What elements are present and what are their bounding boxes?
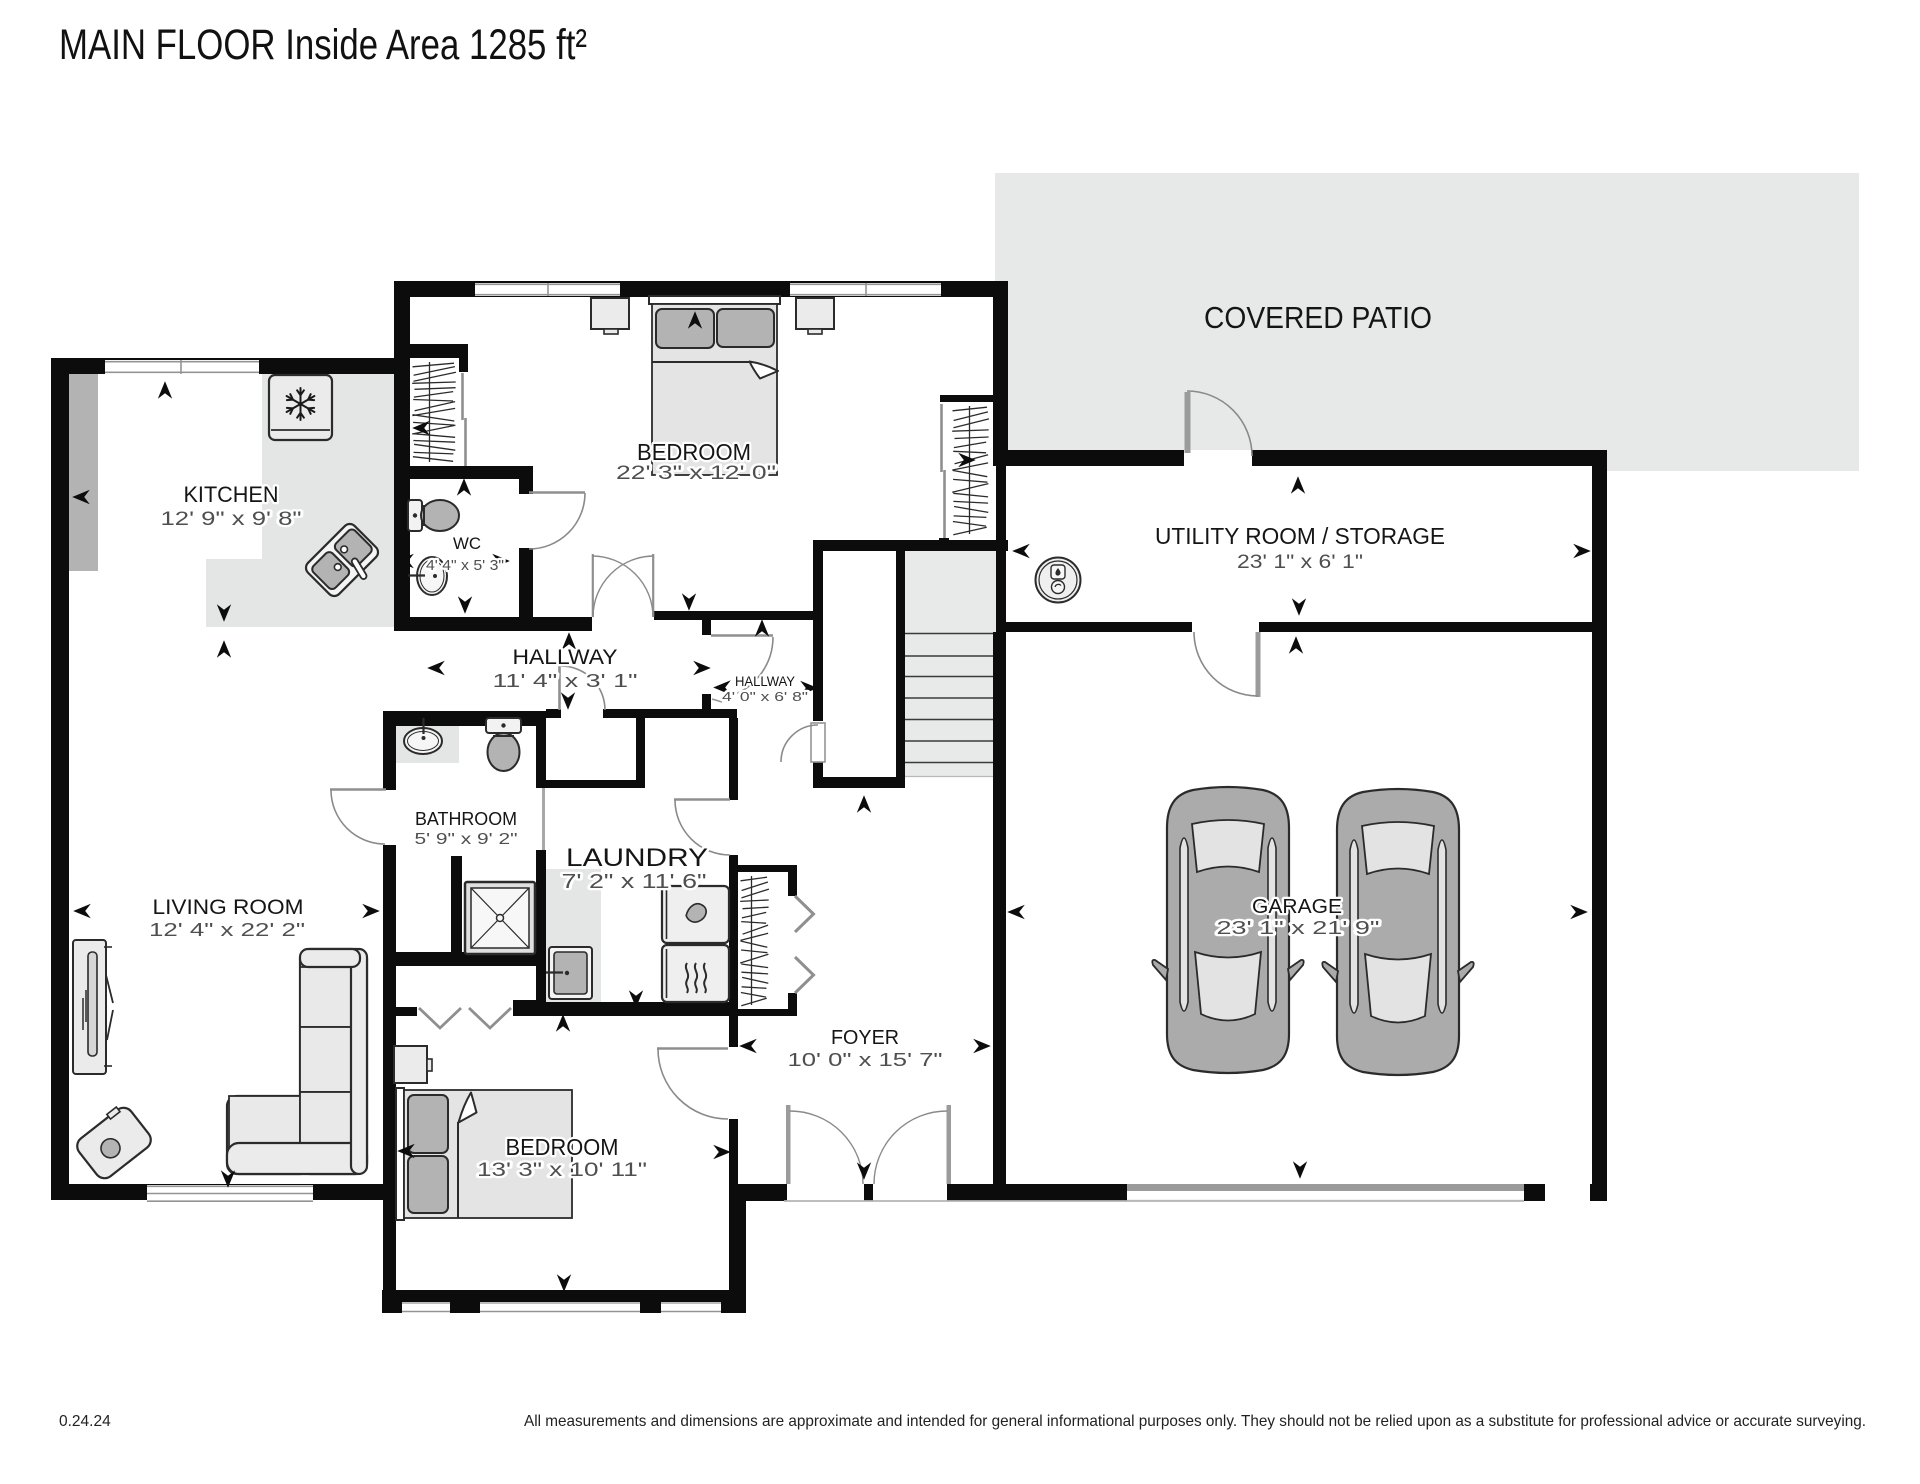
svg-text:BEDROOM: BEDROOM [506, 1134, 619, 1160]
svg-text:All measurements and dimension: All measurements and dimensions are appr… [524, 1413, 1866, 1430]
svg-text:KITCHEN: KITCHEN [184, 482, 279, 507]
svg-text:23' 1" x 21' 9": 23' 1" x 21' 9" [1217, 918, 1380, 938]
svg-text:0.24.24: 0.24.24 [59, 1413, 111, 1430]
svg-text:10' 0" x 15' 7": 10' 0" x 15' 7" [788, 1050, 943, 1070]
svg-text:4' 0" x 6' 8": 4' 0" x 6' 8" [722, 690, 808, 704]
svg-text:23' 1" x 6' 1": 23' 1" x 6' 1" [1237, 552, 1363, 573]
svg-text:4' 4" x 5' 3": 4' 4" x 5' 3" [426, 557, 504, 574]
svg-text:UTILITY ROOM / STORAGE: UTILITY ROOM / STORAGE [1155, 523, 1445, 549]
svg-text:HALLWAY: HALLWAY [735, 674, 795, 689]
svg-text:COVERED PATIO: COVERED PATIO [1204, 300, 1432, 335]
svg-text:BATHROOM: BATHROOM [415, 809, 517, 829]
svg-text:22' 3" x 12' 0": 22' 3" x 12' 0" [616, 463, 776, 484]
svg-text:12' 9" x 9' 8": 12' 9" x 9' 8" [161, 509, 302, 530]
svg-text:HALLWAY: HALLWAY [513, 646, 618, 669]
svg-text:MAIN FLOOR Inside Area 1285 ft: MAIN FLOOR Inside Area 1285 ft² [59, 21, 587, 69]
svg-text:13' 3" x 10' 11": 13' 3" x 10' 11" [477, 1160, 647, 1181]
svg-text:LIVING ROOM: LIVING ROOM [153, 896, 304, 919]
svg-text:11' 4" x 3' 1": 11' 4" x 3' 1" [493, 671, 638, 691]
svg-text:7' 2" x 11' 6": 7' 2" x 11' 6" [562, 871, 707, 893]
svg-text:LAUNDRY: LAUNDRY [566, 844, 708, 872]
svg-text:GARAGE: GARAGE [1252, 896, 1342, 918]
svg-text:5' 9" x 9' 2": 5' 9" x 9' 2" [415, 831, 518, 848]
svg-text:WC: WC [453, 534, 481, 553]
svg-text:12' 4" x 22' 2": 12' 4" x 22' 2" [149, 920, 305, 940]
svg-text:FOYER: FOYER [831, 1027, 899, 1049]
svg-text:BEDROOM: BEDROOM [637, 439, 751, 465]
